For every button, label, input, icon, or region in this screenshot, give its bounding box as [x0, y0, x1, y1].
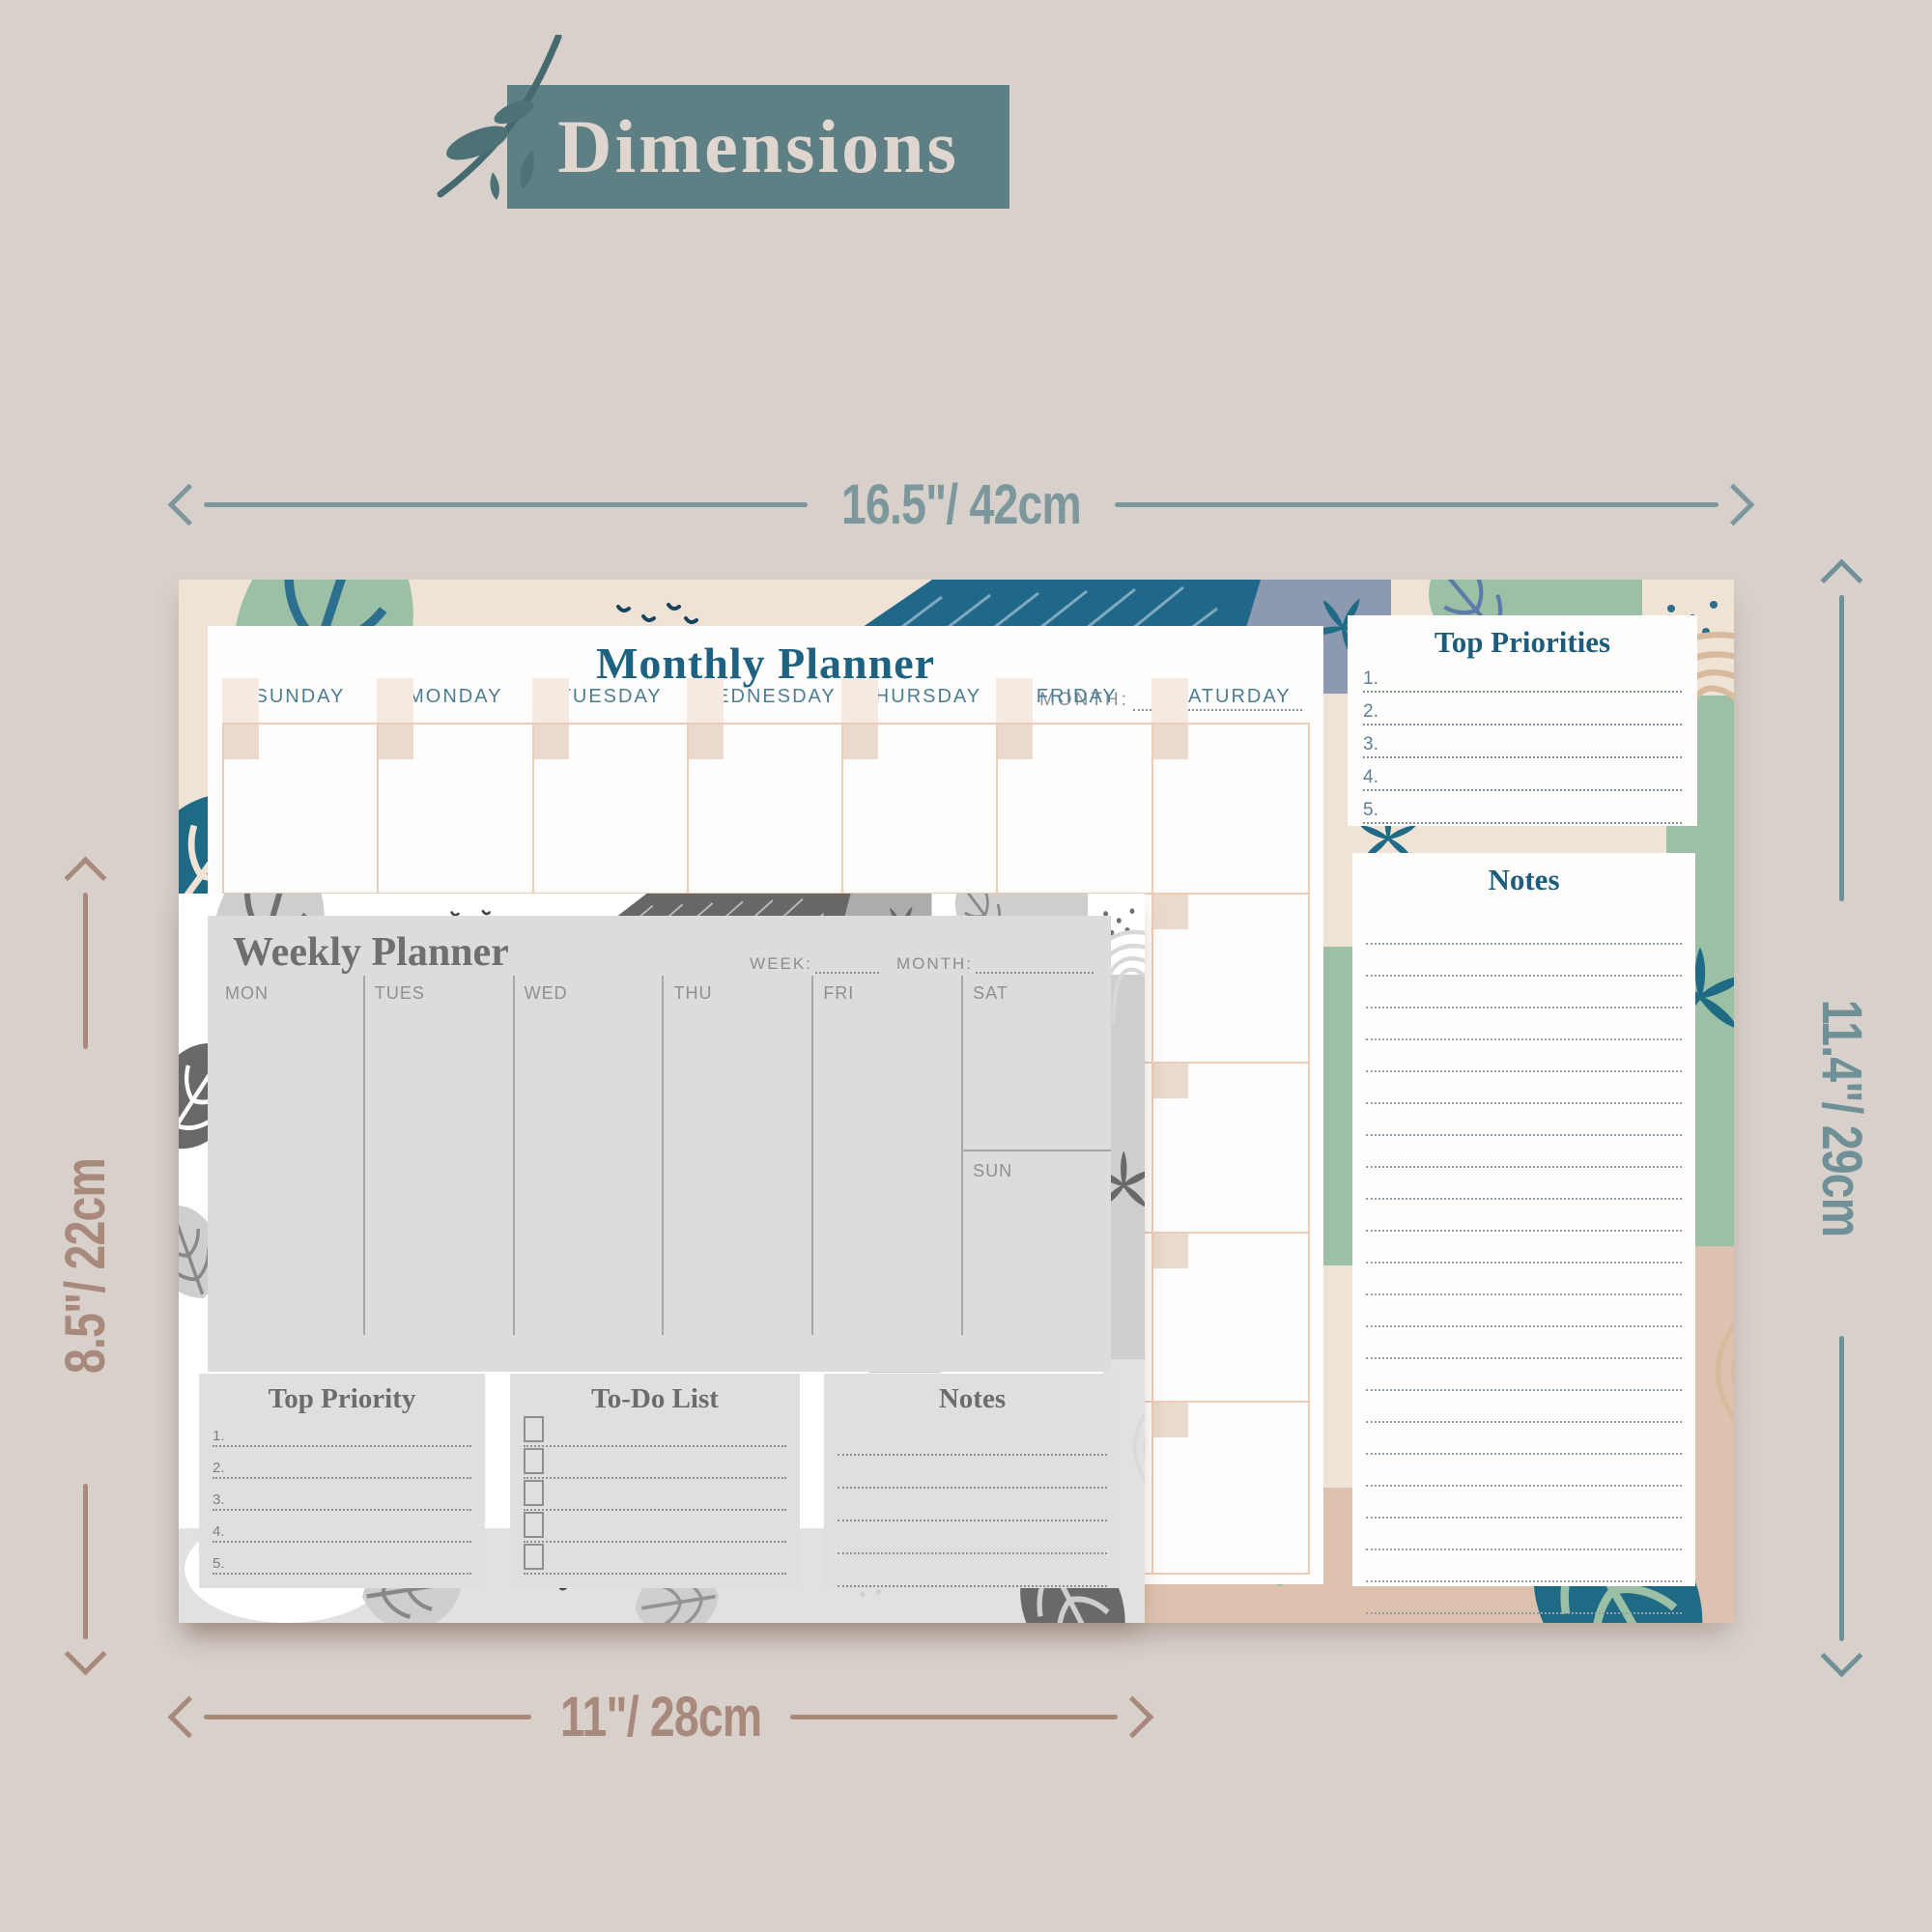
banner: Dimensions [507, 85, 1009, 209]
priority-line: 2. [213, 1447, 471, 1479]
arrowhead-up-icon [64, 857, 106, 899]
branch-decoration-icon [413, 35, 582, 228]
notes-line [1366, 1232, 1682, 1264]
notes-line [1366, 1359, 1682, 1391]
dimension-width-top: 16.5"/ 42cm [174, 473, 1748, 535]
day-header: TUES [375, 983, 425, 1003]
priority-line: 1. [1363, 660, 1682, 693]
notes-line [1366, 913, 1682, 945]
dimension-line [204, 1715, 531, 1719]
notes-title: Notes [1352, 863, 1695, 897]
priority-number: 1. [213, 1428, 225, 1445]
weekly-planner-title: Weekly Planner [233, 929, 509, 976]
priority-number: 1. [1363, 668, 1378, 691]
priority-number: 4. [213, 1523, 225, 1541]
notes-line [838, 1521, 1107, 1554]
notes-line [1366, 1423, 1682, 1455]
todo-line [524, 1479, 786, 1511]
notes-line [1366, 1009, 1682, 1040]
weekly-column: MON [215, 976, 363, 1335]
sat-sun-divider [963, 1150, 1111, 1151]
weekly-column: TUES [363, 976, 513, 1335]
weekly-todo-box: To-Do List [510, 1374, 800, 1588]
weekly-meta: WEEK: MONTH: [750, 954, 1094, 974]
calendar-cell [1153, 1234, 1308, 1404]
notes-line [1366, 1455, 1682, 1487]
notes-line [1366, 1072, 1682, 1104]
top-priority-title: Top Priority [199, 1383, 485, 1415]
checkbox-icon [524, 1416, 544, 1442]
weekly-paper: Weekly Planner WEEK: MONTH: MON TUES WED… [208, 916, 1111, 1372]
notes-line [1366, 1519, 1682, 1550]
calendar-cell [224, 724, 379, 895]
priority-line: 4. [1363, 758, 1682, 791]
priority-number: 3. [1363, 734, 1378, 756]
month-blank-line [976, 956, 1094, 974]
checkbox-icon [524, 1448, 544, 1474]
notes-line [1366, 1040, 1682, 1072]
arrowhead-down-icon [64, 1634, 106, 1676]
weekly-planner-pad: Weekly Planner WEEK: MONTH: MON TUES WED… [179, 894, 1145, 1623]
dimension-left-label: 8.5"/ 22cm [53, 1158, 118, 1374]
priority-line: 5. [1363, 791, 1682, 824]
priority-line: 1. [213, 1415, 471, 1447]
priority-line: 5. [213, 1543, 471, 1575]
dimension-top-label: 16.5"/ 42cm [841, 472, 1081, 537]
dimension-height-left: 8.5"/ 22cm [56, 863, 114, 1669]
arrowhead-down-icon [1820, 1635, 1862, 1678]
todo-line [524, 1511, 786, 1543]
weekly-column-sat-sun: SAT SUN [961, 976, 1111, 1335]
dimension-line [1115, 502, 1719, 507]
checkbox-icon [524, 1480, 544, 1506]
calendar-cell [843, 724, 998, 895]
priority-number: 4. [1363, 767, 1378, 789]
checkbox-icon [524, 1512, 544, 1538]
day-header: FRI [823, 983, 854, 1003]
calendar-cell [534, 724, 689, 895]
arrowhead-right-icon [1713, 483, 1755, 526]
dimensions-infographic: Dimensions 16.5"/ 42cm 11.4"/ 29cm 8.5"/… [0, 0, 1932, 1932]
notes-line [838, 1423, 1107, 1456]
arrowhead-right-icon [1112, 1695, 1154, 1738]
notes-line [1366, 1264, 1682, 1295]
weekly-notes-box: Notes [824, 1374, 1121, 1588]
page-title: Dimensions [557, 103, 959, 190]
notes-line [1366, 945, 1682, 977]
priority-line: 2. [1363, 693, 1682, 725]
checkbox-icon [524, 1544, 544, 1570]
weekly-column: WED [513, 976, 663, 1335]
weekly-column: THU [662, 976, 811, 1335]
notes-line [838, 1456, 1107, 1489]
calendar-cell [1153, 724, 1308, 895]
dimension-bottom-label: 11"/ 28cm [560, 1685, 761, 1749]
priority-number: 2. [1363, 701, 1378, 724]
notes-line [838, 1489, 1107, 1521]
top-priorities-box: Top Priorities 1. 2. 3. 4. 5. [1348, 615, 1697, 826]
notes-line [1366, 1550, 1682, 1582]
notes-line [1366, 1200, 1682, 1232]
notes-lines [1366, 913, 1682, 1614]
calendar-cell [1153, 895, 1308, 1065]
day-header: SAT [973, 983, 1009, 1003]
notes-lines [824, 1423, 1121, 1587]
calendar-cell [1153, 1064, 1308, 1234]
day-header: SUN [973, 1161, 1012, 1181]
dimension-line [83, 893, 88, 1049]
day-header: WED [525, 983, 568, 1003]
priority-number: 5. [213, 1555, 225, 1573]
dimension-line [1839, 1336, 1844, 1642]
notes-line [1366, 1104, 1682, 1136]
todo-line [524, 1447, 786, 1479]
calendar-cell [1153, 1403, 1308, 1573]
notes-line [1366, 1327, 1682, 1359]
todo-line [524, 1543, 786, 1575]
notes-line [1366, 1136, 1682, 1168]
weekly-top-priority-box: Top Priority 1. 2. 3. 4. 5. [199, 1374, 485, 1588]
arrowhead-left-icon [168, 483, 211, 526]
notes-line [1366, 977, 1682, 1009]
dimension-width-bottom: 11"/ 28cm [174, 1686, 1148, 1747]
priority-line: 3. [213, 1479, 471, 1511]
priority-line: 3. [1363, 725, 1682, 758]
dimension-height-right: 11.4"/ 29cm [1812, 565, 1870, 1671]
notes-title: Notes [824, 1383, 1121, 1415]
priority-line: 4. [213, 1511, 471, 1543]
calendar-cell [379, 724, 533, 895]
notes-line [1366, 1582, 1682, 1614]
priority-number: 2. [213, 1460, 225, 1477]
notes-line [1366, 1168, 1682, 1200]
calendar-cell [689, 724, 843, 895]
calendar-cell [998, 724, 1152, 895]
dimension-line [1839, 595, 1844, 901]
monthly-notes-box: Notes [1352, 853, 1695, 1586]
priority-number: 5. [1363, 800, 1378, 822]
day-header: MON [225, 983, 269, 1003]
dimension-right-label: 11.4"/ 29cm [1809, 1000, 1874, 1236]
notes-line [1366, 1487, 1682, 1519]
notes-line [1366, 1391, 1682, 1423]
notes-line [1366, 1295, 1682, 1327]
priority-number: 3. [213, 1492, 225, 1509]
day-header: THU [673, 983, 712, 1003]
week-blank-line [815, 956, 879, 974]
arrowhead-up-icon [1820, 559, 1862, 602]
weekly-column: FRI [811, 976, 961, 1335]
month-label: MONTH: [896, 954, 973, 974]
dimension-line [83, 1484, 88, 1640]
notes-line [838, 1554, 1107, 1587]
week-label: WEEK: [750, 954, 812, 974]
dimension-line [790, 1715, 1118, 1719]
weekly-grid: MON TUES WED THU FRI SAT SUN [215, 976, 1111, 1335]
todo-title: To-Do List [510, 1383, 800, 1415]
arrowhead-left-icon [168, 1695, 211, 1738]
top-priorities-title: Top Priorities [1348, 625, 1697, 660]
todo-line [524, 1415, 786, 1447]
dimension-line [204, 502, 808, 507]
